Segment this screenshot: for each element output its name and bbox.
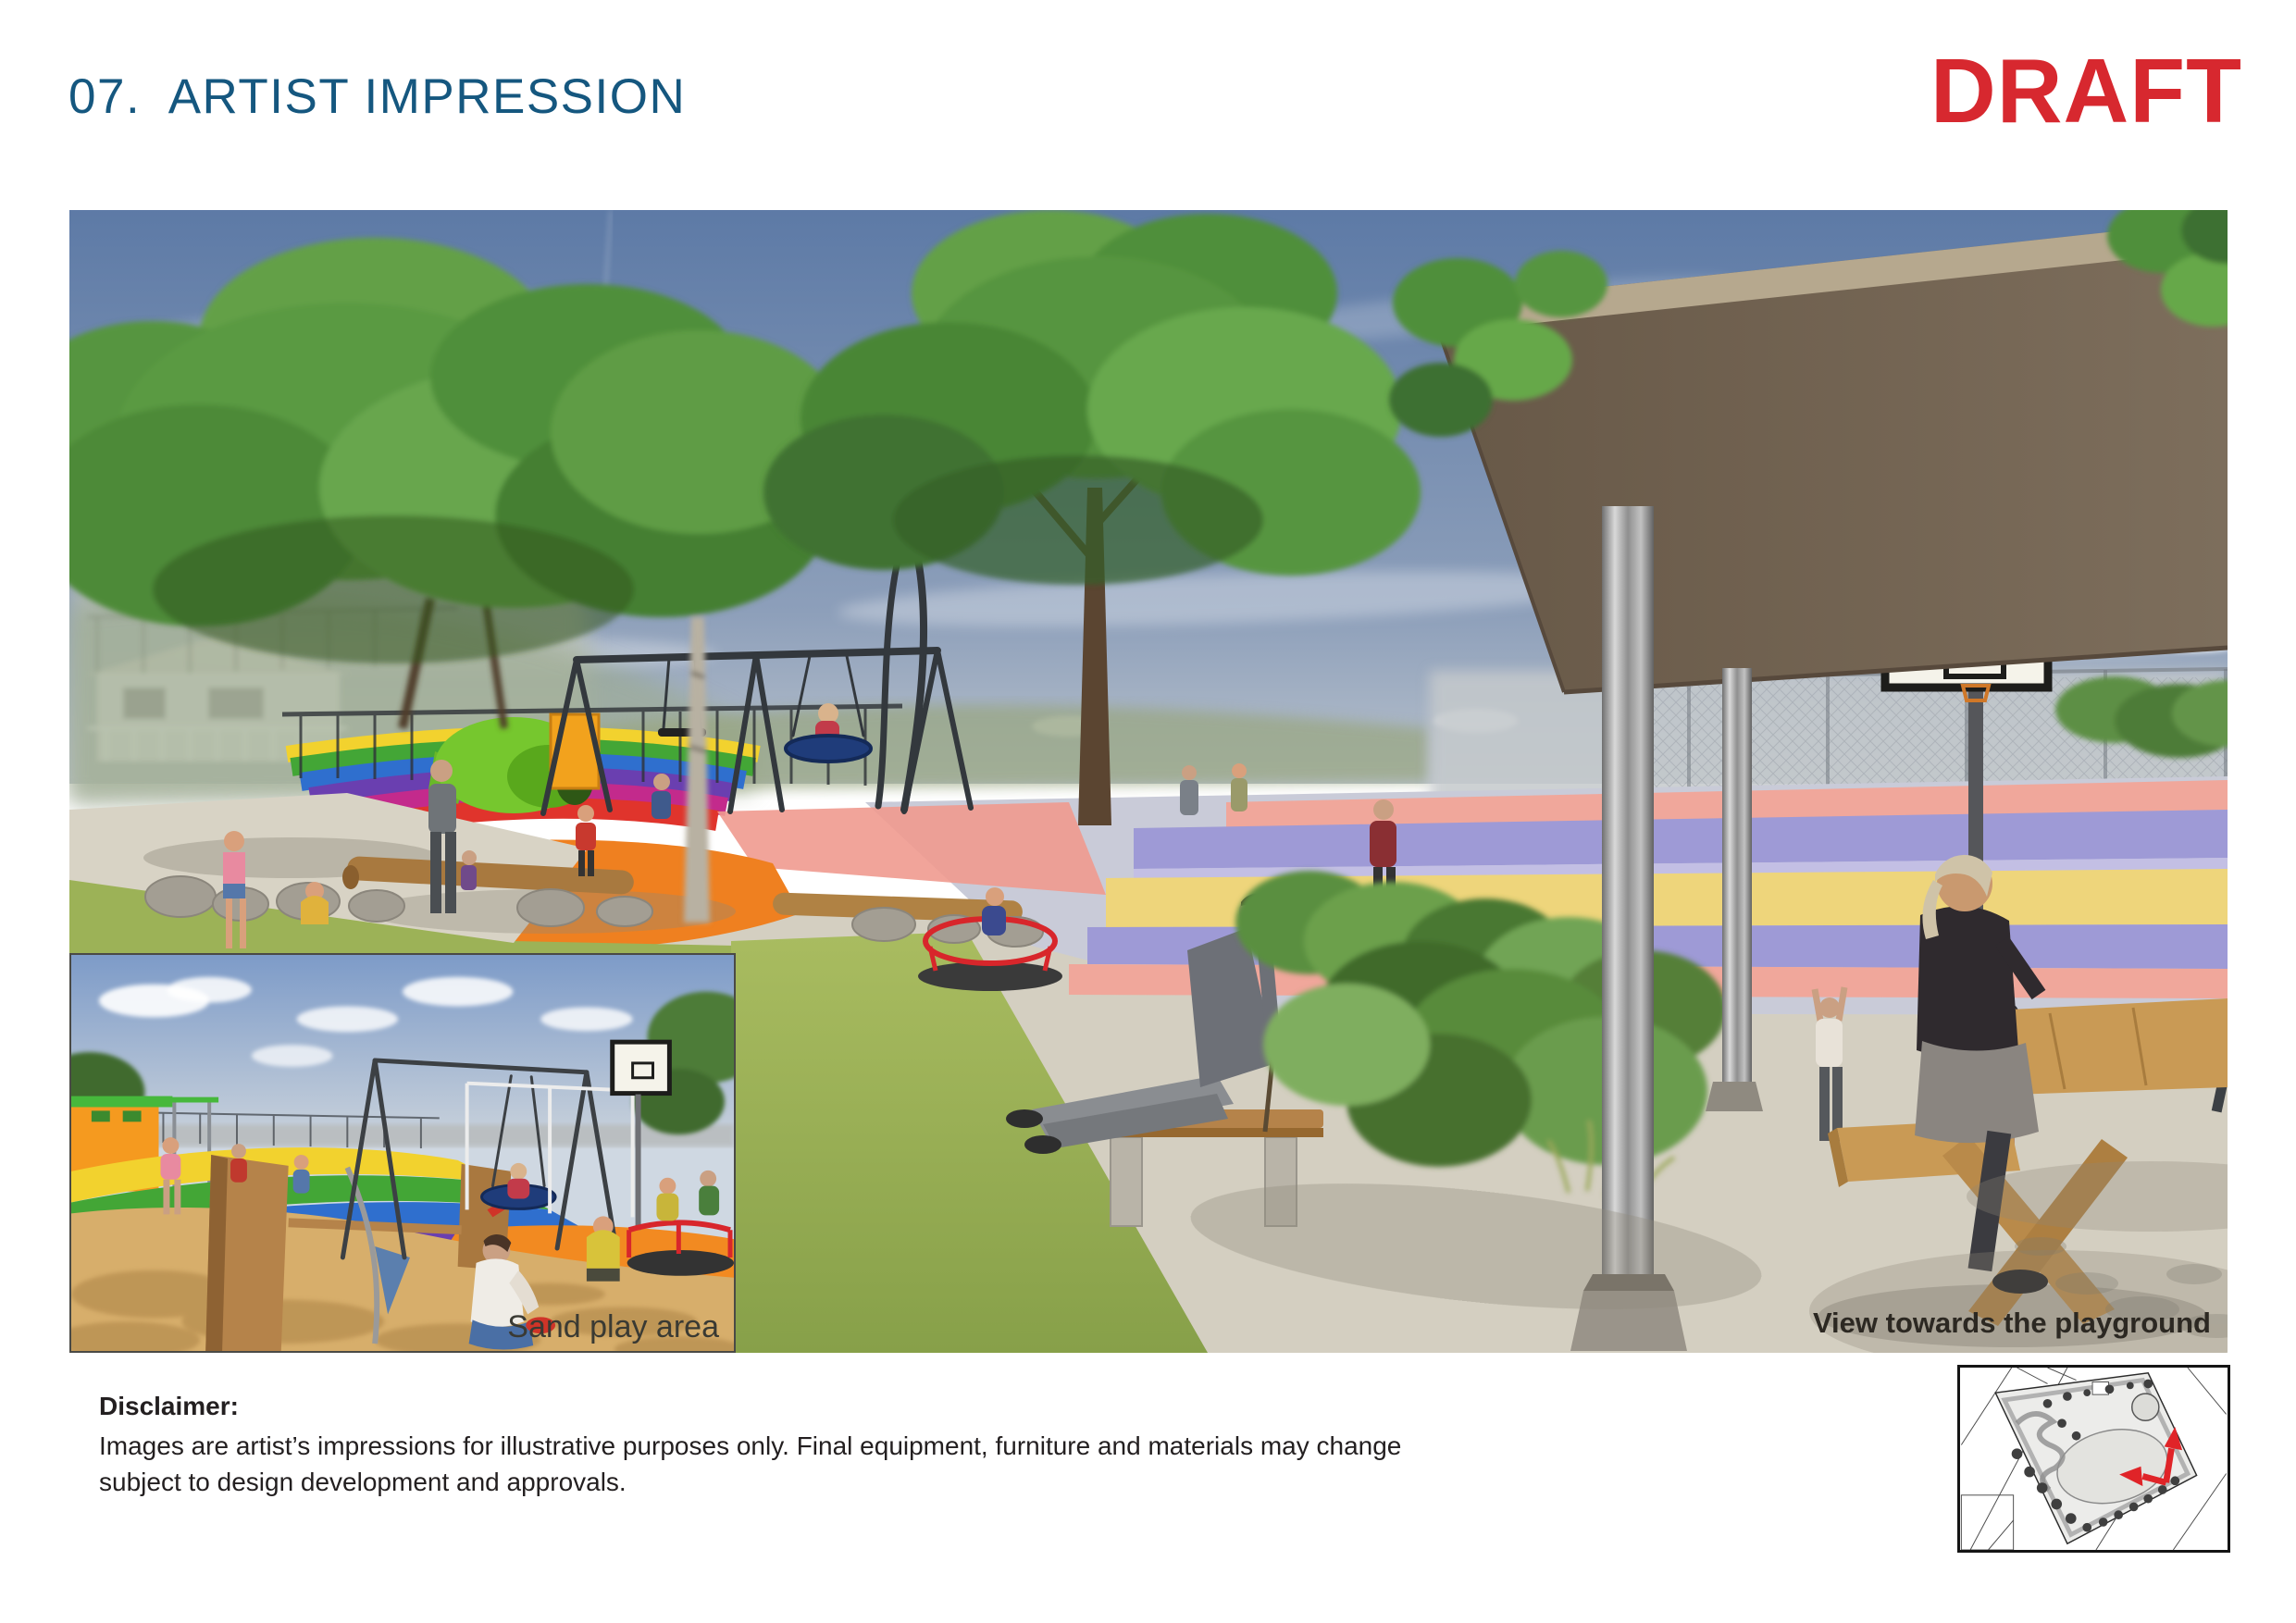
page-title: 07. ARTIST IMPRESSION <box>68 68 686 125</box>
report-page: 07. ARTIST IMPRESSION DRAFT <box>0 0 2296 1623</box>
site-map-svg <box>1960 1368 2228 1550</box>
disclaimer-heading: Disclaimer: <box>99 1392 1487 1421</box>
inset-trampoline <box>627 1171 734 1276</box>
main-image-caption: View towards the playground <box>1813 1307 2211 1340</box>
inset-svg <box>71 955 734 1351</box>
disclaimer-block: Disclaimer: Images are artist’s impressi… <box>99 1392 1487 1500</box>
sand-play-inset: Sand play area <box>69 953 736 1353</box>
disclaimer-body: Images are artist’s impressions for illu… <box>99 1429 1450 1500</box>
site-map-thumbnail <box>1957 1365 2230 1553</box>
draft-watermark: DRAFT <box>1930 39 2242 143</box>
inset-image-caption: Sand play area <box>507 1309 719 1345</box>
